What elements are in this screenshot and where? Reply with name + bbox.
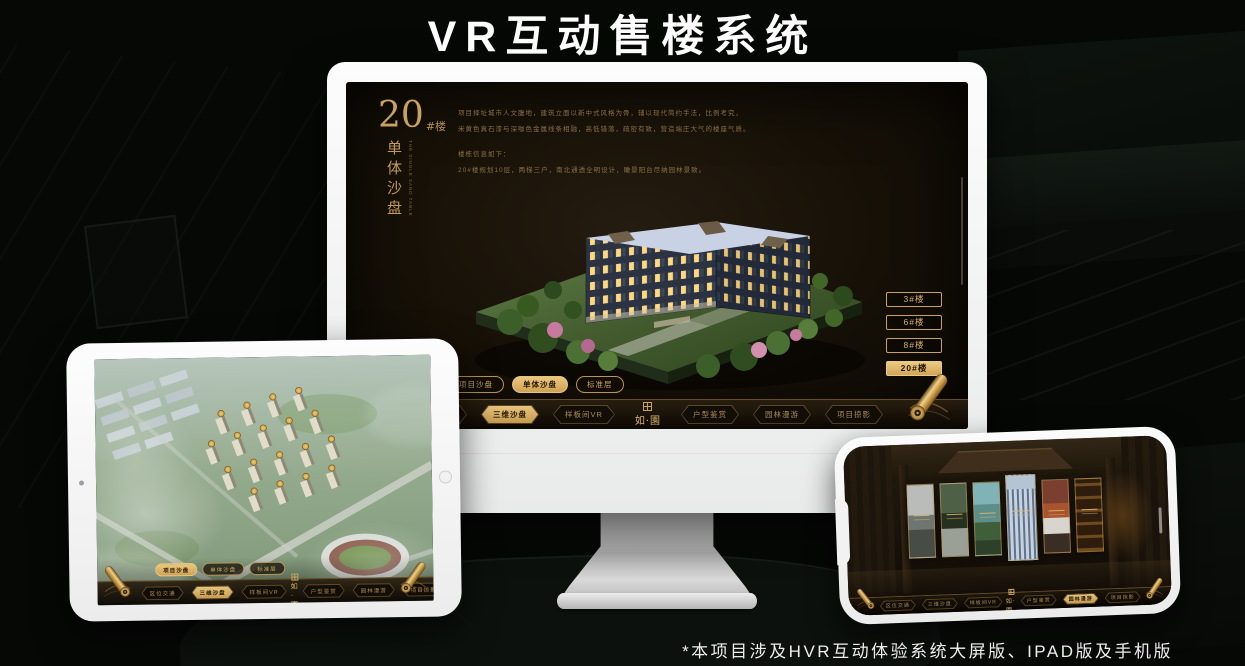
building-model-render bbox=[458, 160, 878, 392]
scroll-handle-icon[interactable] bbox=[906, 367, 952, 429]
unit-number: 20 bbox=[378, 98, 424, 134]
nav-item-location[interactable]: 区位交通 bbox=[880, 599, 916, 611]
tab-single-sandtable[interactable]: 单体沙盘 bbox=[512, 376, 568, 393]
gallery-card[interactable] bbox=[939, 482, 969, 557]
building-selector: 3#楼 6#楼 8#楼 20#楼 bbox=[886, 292, 942, 376]
ipad-camera bbox=[79, 481, 84, 486]
gallery-card[interactable] bbox=[972, 481, 1002, 556]
nav-item-location[interactable]: 区位交通 bbox=[141, 586, 183, 601]
gallery-card[interactable] bbox=[1041, 479, 1071, 554]
brand-seal-icon bbox=[643, 402, 652, 411]
nav-item-3d-sandtable[interactable]: 三维沙盘 bbox=[191, 585, 233, 600]
nav-item-garden-tour[interactable]: 园林漫游 bbox=[353, 583, 395, 598]
monitor-stand-base bbox=[557, 593, 757, 609]
phone-screen: 区位交通 三维沙盘 样板间VR 如·園 户型鉴赏 园林漫游 项目掠影 bbox=[843, 435, 1172, 616]
scroll-handle-icon[interactable] bbox=[855, 584, 876, 615]
nav-item-project-gallery[interactable]: 项目掠影 bbox=[825, 405, 883, 424]
unit-suffix: #楼 bbox=[426, 118, 446, 134]
building-button-6[interactable]: 6#楼 bbox=[886, 315, 942, 330]
tab-standard-floor[interactable]: 标准层 bbox=[576, 376, 624, 393]
ipad-home-button bbox=[439, 470, 452, 483]
ipad-screen: 项目沙盘 单体沙盘 标准层 区位交通 三维沙盘 样板间VR 如·園 户型鉴赏 园… bbox=[94, 355, 433, 606]
scroll-handle-icon[interactable] bbox=[398, 557, 429, 599]
building-button-8[interactable]: 8#楼 bbox=[886, 338, 942, 353]
unit-title-en: THE SINGLE SAND TABLE bbox=[408, 140, 413, 270]
tab-standard-floor[interactable]: 标准层 bbox=[249, 562, 285, 575]
monitor-stand bbox=[563, 511, 751, 595]
nav-item-floorplans[interactable]: 户型鉴赏 bbox=[303, 583, 345, 598]
background-sign bbox=[84, 215, 188, 329]
brand-logo: 如·園 bbox=[1005, 589, 1018, 614]
background-art bbox=[958, 29, 1245, 270]
nav-item-garden-tour[interactable]: 园林漫游 bbox=[753, 405, 811, 424]
background-art bbox=[953, 140, 1245, 231]
nav-item-floorplans[interactable]: 户型鉴赏 bbox=[681, 405, 739, 424]
brand-seal-icon bbox=[1008, 589, 1014, 595]
ipad-device: 项目沙盘 单体沙盘 标准层 区位交通 三维沙盘 样板间VR 如·園 户型鉴赏 园… bbox=[66, 338, 462, 621]
nav-item-showroom-vr[interactable]: 样板间VR bbox=[964, 596, 1003, 608]
nav-item-project-gallery[interactable]: 项目掠影 bbox=[1105, 591, 1141, 603]
nav-item-showroom-vr[interactable]: 样板间VR bbox=[241, 584, 286, 599]
phone-device: 区位交通 三维沙盘 样板间VR 如·園 户型鉴赏 园林漫游 项目掠影 bbox=[834, 426, 1182, 625]
tab-single-sandtable[interactable]: 单体沙盘 bbox=[202, 562, 244, 576]
tab-project-sandtable[interactable]: 项目沙盘 bbox=[155, 563, 197, 577]
background-art bbox=[965, 230, 1245, 400]
gallery-card[interactable] bbox=[906, 484, 936, 559]
building-button-3[interactable]: 3#楼 bbox=[886, 292, 942, 307]
scroll-handle-icon[interactable] bbox=[1144, 573, 1165, 604]
view-tabs: 项目沙盘 单体沙盘 标准层 bbox=[448, 376, 624, 393]
nav-item-garden-tour[interactable]: 园林漫游 bbox=[1063, 593, 1099, 605]
brand-logo: 如·園 bbox=[635, 402, 661, 427]
phone-notch bbox=[835, 498, 850, 564]
gallery-card[interactable] bbox=[1074, 478, 1104, 553]
unit-title: 单体沙盘 bbox=[384, 140, 405, 270]
screen-scrollbar[interactable] bbox=[961, 177, 963, 285]
footnote: *本项目涉及HVR互动体验系统大屏版、IPAD版及手机版 bbox=[682, 637, 1173, 662]
nav-item-floorplans[interactable]: 户型鉴赏 bbox=[1021, 594, 1057, 606]
unit-label: 20 #楼 单体沙盘 THE SINGLE SAND TABLE bbox=[378, 98, 446, 270]
page-title: VR互动售楼系统 bbox=[0, 2, 1245, 64]
brand-seal-icon bbox=[291, 573, 298, 580]
nav-item-showroom-vr[interactable]: 样板间VR bbox=[553, 405, 615, 424]
nav-item-3d-sandtable[interactable]: 三维沙盘 bbox=[481, 405, 539, 424]
gallery-card-focused[interactable] bbox=[1005, 474, 1038, 561]
main-navbar: 区位交通 三维沙盘 样板间VR 如·園 户型鉴赏 园林漫游 项目掠影 bbox=[97, 577, 433, 606]
view-tabs: 项目沙盘 单体沙盘 标准层 bbox=[155, 562, 285, 577]
scroll-handle-icon[interactable] bbox=[102, 561, 133, 603]
brand-logo: 如·園 bbox=[290, 573, 299, 605]
nav-item-3d-sandtable[interactable]: 三维沙盘 bbox=[922, 598, 958, 610]
poster-stage: VR互动售楼系统 20 #楼 单体沙盘 THE SINGLE SAND TABL… bbox=[0, 0, 1245, 666]
